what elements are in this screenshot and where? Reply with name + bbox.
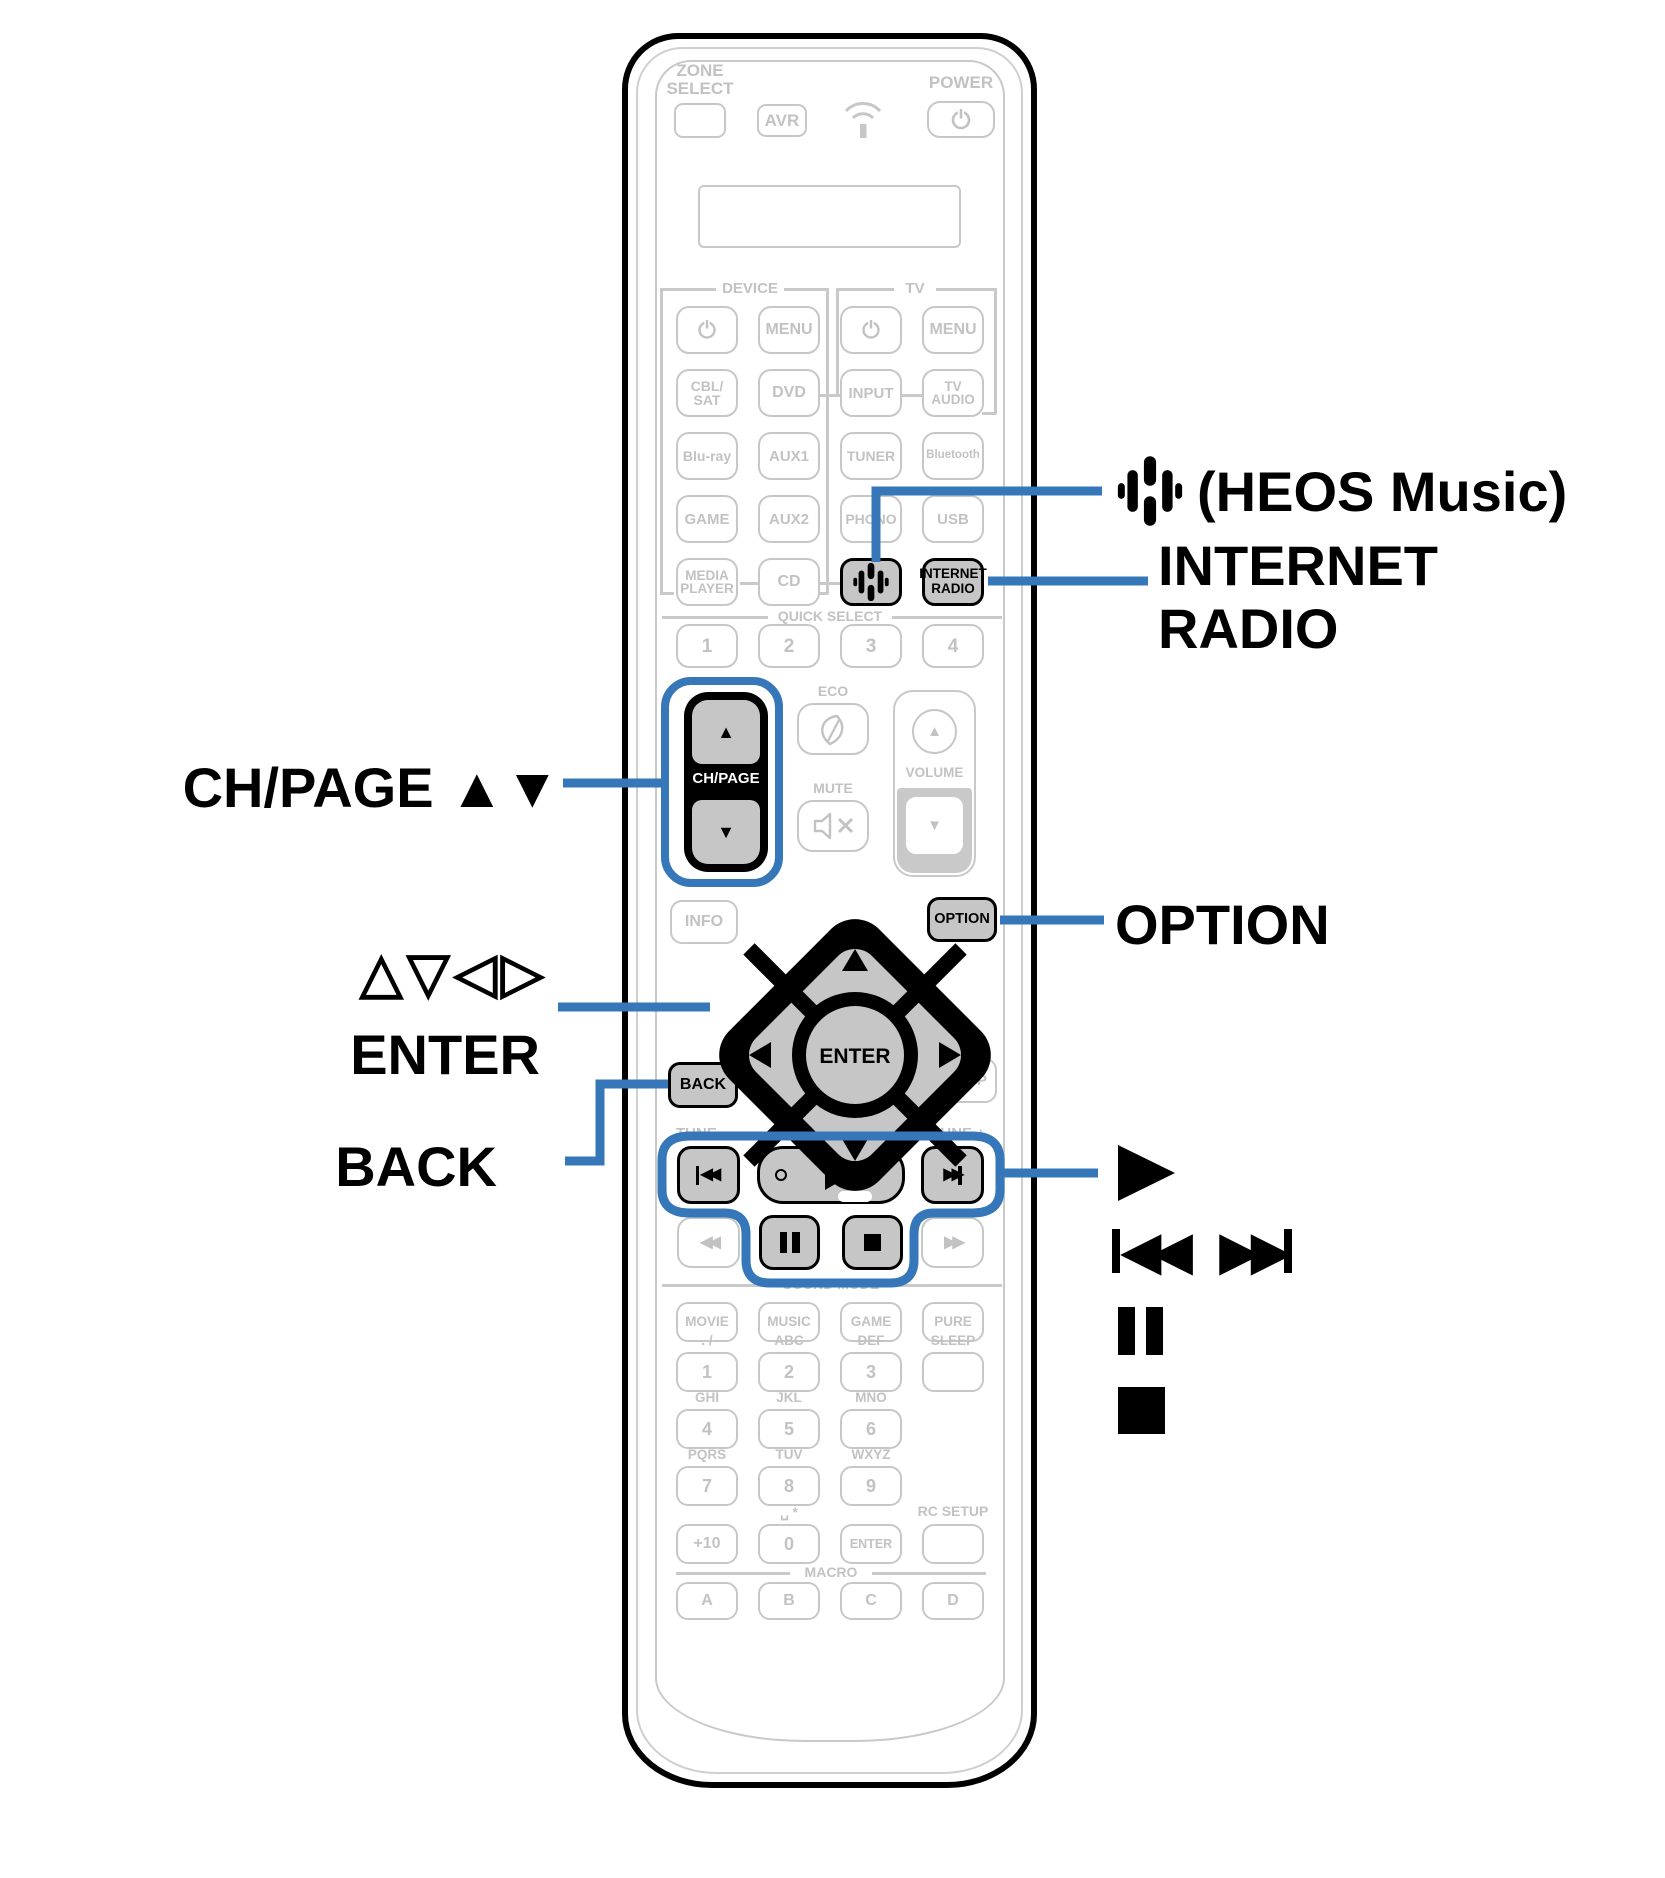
setup-button: SETUP [927, 1058, 997, 1103]
tv-section-label: TV [894, 281, 936, 297]
play-icon [825, 1160, 851, 1190]
remote-diagram: ZONESELECT AVR POWER DEVICE TV [0, 0, 1665, 1878]
macro-label: MACRO [790, 1565, 872, 1580]
back-callout-label: BACK [335, 1134, 497, 1199]
internet-radio-callout-label: INTERNETRADIO [1158, 534, 1438, 660]
wxyz-label: WXYZ [840, 1448, 902, 1462]
internet-radio-button: INTERNETRADIO [922, 558, 984, 606]
eco-button [797, 703, 869, 755]
record-dot [775, 1169, 787, 1181]
numpad-enter-button: ENTER [840, 1524, 902, 1564]
macro-b-button: B [758, 1582, 820, 1620]
back-button: BACK [668, 1062, 738, 1108]
fast-forward-button: ▶▶ [921, 1217, 984, 1268]
fast-forward-icon: ▶▶ [944, 1235, 961, 1251]
pause-button [759, 1215, 820, 1270]
quick-select-label: QUICK SELECT [768, 609, 892, 624]
eco-label: ECO [791, 684, 875, 699]
rc-setup-label: RC SETUP [908, 1504, 998, 1519]
quick-select-1-button: 1 [676, 624, 738, 668]
digit-2-button: 2 [758, 1352, 820, 1392]
mno-label: MNO [840, 1391, 902, 1405]
cd-button: CD [758, 558, 820, 606]
media-player-button: MEDIAPLAYER [676, 558, 738, 606]
cursor-callout-label: △▽◁▷ [360, 940, 548, 1006]
digit-6-button: 6 [840, 1409, 902, 1449]
play-button [757, 1146, 905, 1204]
pause-callout-icon [1118, 1307, 1163, 1355]
skip-forward-bar [958, 1166, 962, 1185]
tv-menu-button: MENU [922, 306, 984, 354]
plus-10-button: +10 [676, 1524, 738, 1564]
sound-mode-label: SOUND MODE [766, 1277, 896, 1292]
aux1-button: AUX1 [758, 432, 820, 480]
mute-label: MUTE [791, 781, 875, 796]
dot-slash-label: . / [676, 1334, 738, 1348]
tuv-label: TUV [758, 1448, 820, 1462]
sleep-button [922, 1352, 984, 1392]
display-window [698, 185, 961, 248]
rewind-button: ◀◀ [677, 1217, 740, 1268]
device-menu-button: MENU [758, 306, 820, 354]
rc-setup-button [922, 1524, 984, 1564]
power-icon [860, 319, 882, 341]
ghi-label: GHI [676, 1391, 738, 1405]
pause-icon-bar2 [792, 1232, 800, 1253]
space-star-label: ␣ * [758, 1506, 820, 1520]
enter-callout-label: ENTER [350, 1022, 540, 1087]
macro-c-button: C [840, 1582, 902, 1620]
option-button: OPTION [927, 897, 997, 942]
stop-button [842, 1215, 903, 1270]
heos-callout-label: (HEOS Music) [1117, 448, 1567, 534]
skip-back-callout-icon: ◀◀ [1120, 1229, 1183, 1273]
rewind-icon: ◀◀ [700, 1235, 717, 1251]
skip-forward-callout-icon: ▶▶ [1219, 1229, 1282, 1273]
option-callout-label: OPTION [1115, 892, 1330, 957]
def-label: DEF [840, 1334, 902, 1348]
phono-button: PHONO [840, 495, 902, 543]
digit-0-button: 0 [758, 1524, 820, 1564]
abc-label: ABC [758, 1334, 820, 1348]
tv-audio-button: TVAUDIO [922, 369, 984, 417]
stop-callout-icon [1118, 1387, 1165, 1434]
mute-speaker-icon [812, 811, 854, 841]
wifi-transmit-icon [840, 95, 886, 143]
zone-select-label: ZONESELECT [656, 62, 744, 98]
digit-5-button: 5 [758, 1409, 820, 1449]
heos-callout-text: (HEOS Music) [1197, 459, 1567, 524]
skip-back-button: ◀◀ [677, 1146, 740, 1204]
tune-plus-label: TUNE + [902, 1126, 985, 1142]
digit-8-button: 8 [758, 1466, 820, 1506]
avr-button: AVR [757, 104, 807, 137]
heos-music-icon [1117, 451, 1183, 531]
usb-button: USB [922, 495, 984, 543]
volume-label: VOLUME [893, 766, 976, 780]
skip-forward-callout-bar [1284, 1229, 1292, 1273]
macro-d-button: D [922, 1582, 984, 1620]
quick-select-3-button: 3 [840, 624, 902, 668]
jkl-label: JKL [758, 1391, 820, 1405]
cbl-sat-button: CBL/SAT [676, 369, 738, 417]
tv-power-button [840, 306, 902, 354]
stop-icon [864, 1234, 881, 1251]
digit-3-button: 3 [840, 1352, 902, 1392]
pqrs-label: PQRS [676, 1448, 738, 1462]
ch-page-callout-label: CH/PAGE ▲▼ [183, 755, 560, 820]
power-label: POWER [920, 74, 1002, 92]
bluetooth-button: Bluetooth [922, 432, 984, 480]
input-button: INPUT [840, 369, 902, 417]
digit-7-button: 7 [676, 1466, 738, 1506]
play-callout-icon [1118, 1145, 1175, 1201]
mute-button [797, 800, 869, 852]
skip-back-bar [696, 1166, 700, 1185]
power-icon [949, 108, 973, 132]
volume-down-button: ▼ [906, 797, 963, 854]
blu-ray-button: Blu-ray [676, 432, 738, 480]
pause-icon [780, 1232, 788, 1253]
skip-back-callout-bar [1112, 1229, 1120, 1273]
quick-select-2-button: 2 [758, 624, 820, 668]
info-button: INFO [670, 900, 738, 944]
digit-1-button: 1 [676, 1352, 738, 1392]
skip-back-icon: ◀◀ [700, 1167, 717, 1183]
game-button: GAME [676, 495, 738, 543]
ch-page-highlight [661, 677, 783, 887]
power-button [927, 101, 995, 138]
tune-minus-label: TUNE — [676, 1126, 756, 1142]
volume-up-button: ▲ [912, 709, 957, 754]
digit-9-button: 9 [840, 1466, 902, 1506]
skip-callout-icons: ◀◀ ▶▶ [1112, 1229, 1292, 1273]
skip-forward-button: ▶▶ [921, 1146, 984, 1204]
sleep-label: SLEEP [922, 1334, 984, 1348]
aux2-button: AUX2 [758, 495, 820, 543]
digit-4-button: 4 [676, 1409, 738, 1449]
heos-music-button [840, 558, 902, 606]
heos-music-icon [852, 561, 890, 603]
dvd-button: DVD [758, 369, 820, 417]
quick-select-4-button: 4 [922, 624, 984, 668]
device-power-button [676, 306, 738, 354]
macro-a-button: A [676, 1582, 738, 1620]
zone-select-button [674, 103, 726, 138]
tuner-button: TUNER [840, 432, 902, 480]
power-icon [696, 319, 718, 341]
device-section-label: DEVICE [712, 281, 788, 297]
eco-leaf-icon [815, 711, 851, 747]
